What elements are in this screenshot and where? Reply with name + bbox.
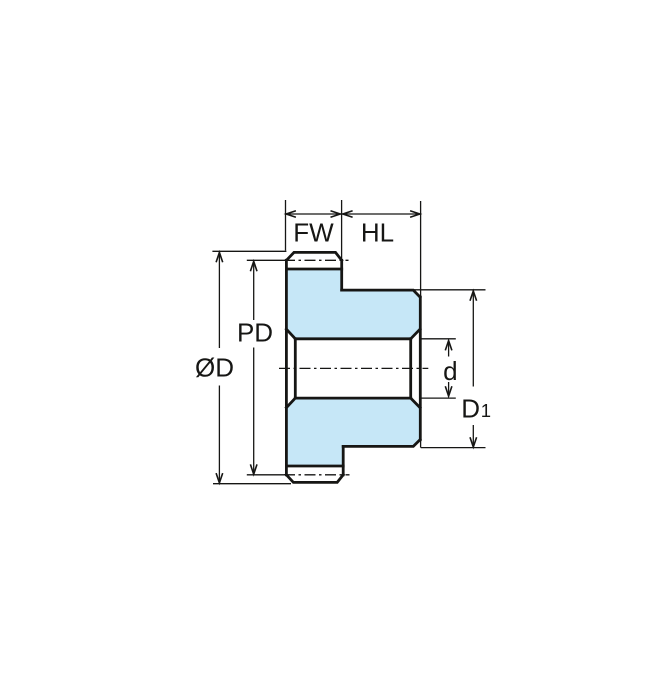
svg-text:FW: FW [293,218,334,248]
svg-text:d: d [443,356,457,386]
svg-text:1: 1 [481,400,491,421]
svg-text:D: D [461,393,480,423]
svg-text:ØD: ØD [195,353,234,383]
svg-text:HL: HL [361,218,394,248]
svg-text:PD: PD [237,318,273,348]
